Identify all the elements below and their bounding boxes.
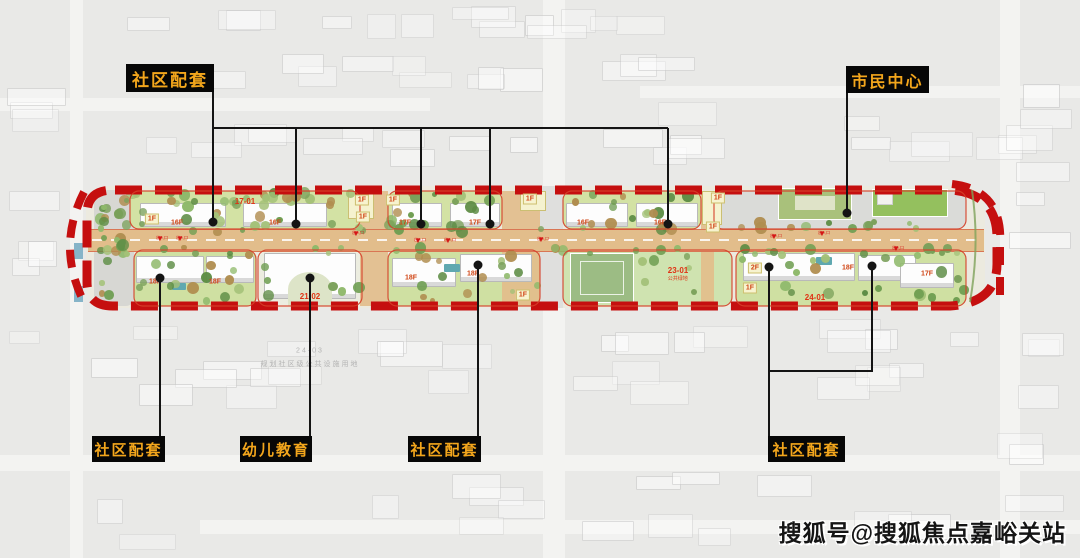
floor-count-label: 1F (355, 195, 369, 206)
floor-count-label: 2F (748, 263, 762, 274)
parcel-code-label: 23-01公共绿地 (668, 266, 688, 276)
floor-count-label: 1F (711, 193, 725, 204)
parcel-code-label: 24-01 (805, 293, 825, 303)
floor-count-label: 1F (523, 194, 537, 205)
floor-count-label: 17F (469, 220, 481, 227)
floor-count-label: 1F (386, 195, 400, 206)
floor-count-label: 18F (209, 279, 221, 286)
floor-count-label: 1F (743, 283, 757, 294)
callout-community-bottom-left: 社区配套 (92, 436, 165, 462)
faded-planning-label: 24-03 (296, 348, 324, 355)
callout-community-top: 社区配套 (126, 64, 214, 92)
floor-count-label: 16F (269, 220, 281, 227)
floor-count-label: 1F (356, 212, 370, 223)
floor-count-label: 1F (145, 214, 159, 225)
floor-count-label: 1F (516, 290, 530, 301)
floor-count-label: 18F (405, 275, 417, 282)
floor-count-label: 18F (467, 271, 479, 278)
floor-count-label: 16F (171, 220, 183, 227)
callout-community-bottom-right: 社区配套 (768, 436, 845, 462)
site-plan-canvas: 1F16F16F1F1F1F17F17F1F16F16F1F1F18F18F18… (0, 0, 1080, 558)
floor-count-label: 18F (842, 265, 854, 272)
callout-civic-center: 市民中心 (846, 66, 929, 93)
floor-count-label: 16F (577, 220, 589, 227)
parcel-code-label: 17-01 (235, 197, 255, 207)
floor-count-label: 17F (921, 271, 933, 278)
callout-community-bottom-middle: 社区配套 (408, 436, 481, 462)
floor-count-label: 17F (399, 220, 411, 227)
floor-count-label: 18F (149, 279, 161, 286)
callout-kindergarten: 幼儿教育 (240, 436, 312, 462)
parcel-code-label: 21-02 (300, 292, 320, 302)
floor-count-label: 1F (706, 222, 720, 233)
watermark: 搜狐号@搜狐焦点嘉峪关站 (779, 514, 1066, 548)
floor-count-label: 16F (654, 220, 666, 227)
faded-planning-label: 规划社区级公共设施用地 (261, 359, 360, 369)
